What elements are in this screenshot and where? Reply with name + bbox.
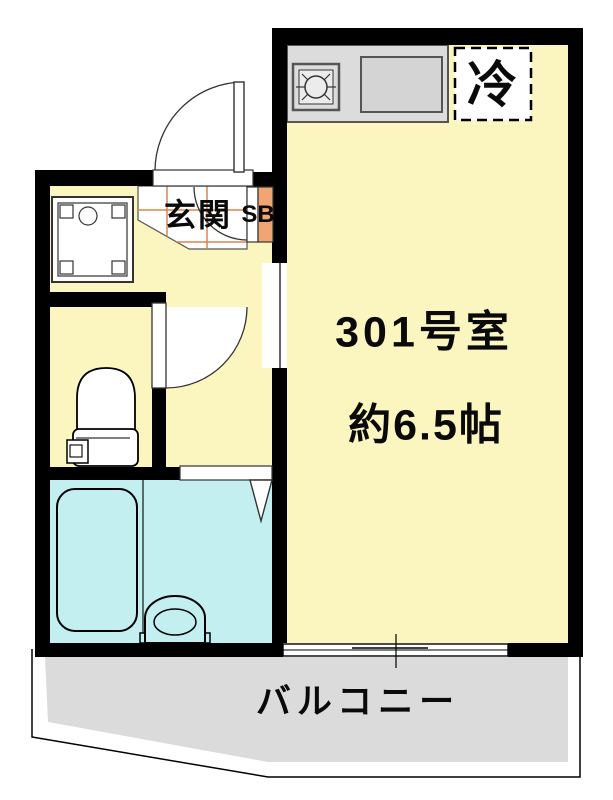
room-number-label: 301号室 [335, 312, 513, 355]
hall-room-opening [262, 263, 287, 368]
toilet-door-leaf [152, 303, 166, 388]
floorplan: 玄関 SB 冷 301号室 約6.5帖 バルコニー [0, 0, 613, 800]
washbasin-bowl [154, 609, 196, 635]
entrance-door-swing-area [155, 82, 244, 171]
bathroom-door-sill [180, 466, 272, 480]
wall-top [272, 28, 583, 45]
toilet-flush-button [70, 445, 82, 457]
washing-machine-drain [79, 207, 97, 225]
wall-main-left-upper [272, 45, 287, 263]
wall-bottom-right [508, 643, 583, 657]
wall-toilet-bath [35, 467, 180, 480]
toilet-bowl [77, 368, 135, 432]
shoe-box-label: SB [241, 203, 274, 227]
room-area-label: 約6.5帖 [348, 405, 504, 448]
wall-left-outer [35, 170, 50, 655]
floorplan-drawing [0, 0, 613, 800]
refrigerator-label: 冷 [467, 60, 517, 110]
wall-toilet-hall [152, 388, 166, 480]
wall-washer-toilet [35, 292, 166, 307]
wall-entrance-top [35, 170, 153, 186]
wall-right [568, 28, 583, 657]
bathtub [57, 489, 137, 631]
balcony-label: バルコニー [256, 685, 460, 720]
entrance-door-leaf [234, 82, 244, 172]
wall-bottom-left [35, 643, 283, 657]
kitchen-sink [361, 57, 442, 112]
wall-shoebox-stub [253, 172, 272, 187]
entrance-label: 玄関 [164, 199, 232, 231]
wall-main-left-lower [272, 368, 287, 643]
